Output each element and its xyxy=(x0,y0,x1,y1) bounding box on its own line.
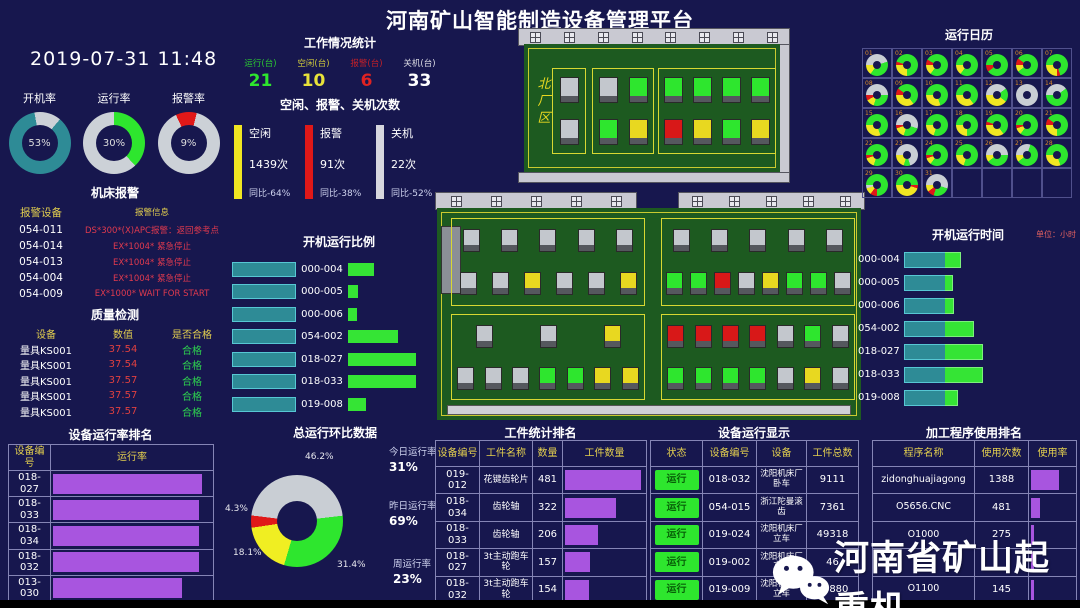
counts-title: 空闲、报警、关机次数 xyxy=(234,96,446,113)
work-stat-value: 33 xyxy=(393,71,446,91)
machine-base xyxy=(561,96,578,102)
factory-zone-br xyxy=(661,314,855,400)
workpiece-count: 481 xyxy=(533,467,563,494)
calendar-day-donut xyxy=(896,144,918,166)
machine-base xyxy=(540,245,555,251)
machine-base xyxy=(668,341,683,347)
alarm-info: DS*300*(X)APC报警：返回参考点 xyxy=(78,224,226,236)
alarm-col-device: 报警设备 xyxy=(4,205,78,220)
machine-gray xyxy=(777,367,794,390)
calendar-day-donut xyxy=(956,54,978,76)
machine-row xyxy=(452,262,644,305)
factory-zone-tl xyxy=(451,218,645,306)
time-run-bar xyxy=(945,344,983,360)
quality-result: 合格 xyxy=(158,357,226,372)
machine-gray xyxy=(832,367,849,390)
ratio-run-bar xyxy=(348,353,416,366)
machine-base xyxy=(541,341,556,347)
calendar-day-hole xyxy=(1053,61,1061,69)
calendar-day-hole xyxy=(933,61,941,69)
machine-base xyxy=(561,138,578,144)
wall-column xyxy=(564,32,575,43)
machine-gray xyxy=(588,272,605,295)
wall-column xyxy=(530,32,541,43)
alarm-header: 报警设备 报警信息 xyxy=(4,204,226,220)
calendar-day-donut xyxy=(1016,144,1038,166)
machine-red xyxy=(667,325,684,348)
machine-base xyxy=(595,383,610,389)
machine-green xyxy=(786,272,803,295)
calendar-day: 05 xyxy=(982,48,1012,78)
workpiece-name: 3t主动跑车轮 xyxy=(480,549,533,576)
count-value: 91次 xyxy=(320,156,361,172)
calendar-day: 04 xyxy=(952,48,982,78)
ratio-poweron-bar xyxy=(232,307,296,322)
machine-red xyxy=(664,119,683,145)
calendar-day-hole xyxy=(963,121,971,129)
machine-yellow xyxy=(762,272,779,295)
factory-zone-bl xyxy=(451,314,645,400)
machine-green xyxy=(664,77,683,103)
device-status-cell: 运行 xyxy=(651,467,703,494)
quality-title: 质量检测 xyxy=(4,306,226,323)
program-name: O5656.CNC xyxy=(873,494,975,521)
quality-result: 合格 xyxy=(158,388,226,403)
machine-gray xyxy=(560,77,579,103)
time-run-bar xyxy=(945,390,958,406)
alarm-row: 054-004EX*1004* 紧急停止 xyxy=(4,270,226,286)
rate-bar-cell xyxy=(51,576,214,602)
machine-green xyxy=(599,119,618,145)
machine-base xyxy=(486,383,501,389)
calendar-day-hole xyxy=(873,121,881,129)
gauge-donut: 运行率30% xyxy=(79,90,150,174)
machine-row xyxy=(659,111,775,153)
workpiece-bar-cell xyxy=(563,467,647,494)
calendar-day: 02 xyxy=(892,48,922,78)
time-chart-unit: 单位：小时 xyxy=(1036,229,1076,240)
wall-column xyxy=(611,196,622,207)
alarm-col-info: 报警信息 xyxy=(78,206,226,218)
time-run-bar xyxy=(945,321,974,337)
count-yoy: 同比-64% xyxy=(249,186,290,199)
calendar-day: 22 xyxy=(862,138,892,168)
machine-base xyxy=(668,383,683,389)
work-stat-label: 关机(台) xyxy=(393,57,446,69)
machine-base xyxy=(805,383,820,389)
quality-row: 量具KS00137.54合格 xyxy=(4,342,226,358)
machine-gray xyxy=(599,77,618,103)
work-stat: 运行(台)21 xyxy=(234,57,287,91)
wall-column xyxy=(632,32,643,43)
time-poweron-bar xyxy=(904,367,945,383)
time-row: 054-002 xyxy=(858,317,1078,340)
machine-yellow xyxy=(804,367,821,390)
work-stats-panel: 工作情况统计 运行(台)21空闲(台)10报警(台)6关机(台)33 xyxy=(234,34,446,91)
rate-bar-cell xyxy=(51,497,214,523)
time-poweron-bar xyxy=(904,252,945,268)
calendar-day: 08 xyxy=(862,78,892,108)
machine-base xyxy=(723,96,740,102)
quality-row: 量具KS00137.54合格 xyxy=(4,357,226,373)
quality-result: 合格 xyxy=(158,373,226,388)
machine-gray xyxy=(457,367,474,390)
calendar-day-donut xyxy=(866,174,888,196)
calendar-day-hole xyxy=(1023,61,1031,69)
count-label: 空闲 xyxy=(249,125,290,141)
calendar-day-donut xyxy=(1016,84,1038,106)
device-col-header: 设备编号 xyxy=(703,441,757,467)
dashboard: 河南矿山智能制造设备管理平台 2019-07-31 11:48 开机率53%运行… xyxy=(0,0,1080,608)
wall-column xyxy=(767,32,778,43)
calendar-day-hole xyxy=(1023,121,1031,129)
quality-device: 量具KS001 xyxy=(4,342,88,357)
machine-yellow xyxy=(594,367,611,390)
rate-bar xyxy=(53,552,199,572)
calendar-day: 20 xyxy=(1012,108,1042,138)
program-name: zidonghuajiagong xyxy=(873,467,975,494)
calendar-day: 09 xyxy=(892,78,922,108)
calendar-day-donut xyxy=(1046,114,1068,136)
calendar-day-hole xyxy=(873,61,881,69)
rate-device-id: 013-030 xyxy=(9,576,51,602)
calendar-day-donut xyxy=(986,114,1008,136)
ratio-run-bar xyxy=(348,285,358,298)
work-stats-items: 运行(台)21空闲(台)10报警(台)6关机(台)33 xyxy=(234,57,446,91)
machine-green xyxy=(722,119,741,145)
rate-bar xyxy=(53,474,202,494)
machine-row xyxy=(662,262,854,305)
ratio-row: 018-033 xyxy=(232,371,446,394)
alarm-device: 054-009 xyxy=(4,288,78,300)
device-name: 沈阳机床厂卧车 xyxy=(757,467,807,494)
rate-device-id: 018-032 xyxy=(9,550,51,576)
machine-base xyxy=(617,245,632,251)
main-floor xyxy=(437,208,861,420)
calendar-day-donut xyxy=(926,84,948,106)
machine-gray xyxy=(749,229,766,252)
rate-col-header: 运行率 xyxy=(51,445,214,471)
calendar-day: 15 xyxy=(862,108,892,138)
wall-column xyxy=(491,196,502,207)
rate-rank-title: 设备运行率排名 xyxy=(8,426,213,443)
machine-base xyxy=(778,383,793,389)
ratio-poweron-bar xyxy=(232,284,296,299)
count-text: 关机22次同比-52% xyxy=(391,125,432,199)
ratio-device-id: 018-033 xyxy=(296,376,348,387)
north-area-label: 北 厂 区 xyxy=(536,76,552,127)
calendar-day-hole xyxy=(933,151,941,159)
calendar-day xyxy=(1042,168,1072,198)
machine-base xyxy=(568,383,583,389)
calendar-day: 17 xyxy=(922,108,952,138)
calendar-day: 24 xyxy=(922,138,952,168)
program-col-header: 使用次数 xyxy=(975,441,1029,467)
wall-column xyxy=(733,32,744,43)
gauge-value: 30% xyxy=(83,112,145,174)
calendar-day-donut xyxy=(896,174,918,196)
work-stat: 空闲(台)10 xyxy=(287,57,340,91)
rate-bar xyxy=(53,526,199,546)
wechat-icon xyxy=(770,552,832,608)
counts-panel: 空闲、报警、关机次数 空闲1439次同比-64%报警91次同比-38%关机22次… xyxy=(234,96,446,199)
calendar-day: 29 xyxy=(862,168,892,198)
machine-gray xyxy=(539,229,556,252)
device-status-cell: 运行 xyxy=(651,494,703,521)
north-machine-group xyxy=(592,68,654,154)
quality-device: 量具KS001 xyxy=(4,388,88,403)
machine-base xyxy=(461,288,476,294)
calendar-day-hole xyxy=(993,91,1001,99)
ratio-chart-panel: 开机运行比例 000-004000-005000-006054-002018-0… xyxy=(232,233,446,416)
calendar-day-hole xyxy=(903,91,911,99)
ratio-device-id: 019-008 xyxy=(296,399,348,410)
count-text: 报警91次同比-38% xyxy=(320,125,361,199)
calendar-day-donut xyxy=(1016,54,1038,76)
machine-base xyxy=(789,245,804,251)
alarm-row: 054-014EX*1004* 紧急停止 xyxy=(4,238,226,254)
workpiece-col-header: 工件数量 xyxy=(563,441,647,467)
machine-green xyxy=(666,272,683,295)
rate-col-header: 设备编号 xyxy=(9,445,51,471)
machine-red xyxy=(722,325,739,348)
machine-base xyxy=(723,383,738,389)
calendar-day-donut xyxy=(896,114,918,136)
ratio-run-bar xyxy=(348,375,416,388)
workpiece-bar xyxy=(565,525,598,545)
ratio-row: 000-005 xyxy=(232,281,446,304)
time-row: 000-006 xyxy=(858,294,1078,317)
machine-yellow xyxy=(693,119,712,145)
machine-gray xyxy=(673,229,690,252)
calendar-day-hole xyxy=(993,121,1001,129)
calendar-day: 10 xyxy=(922,78,952,108)
rate-device-id: 018-033 xyxy=(9,497,51,523)
alarm-device: 054-014 xyxy=(4,240,78,252)
calendar-day-hole xyxy=(963,61,971,69)
machine-base xyxy=(787,288,802,294)
machine-base xyxy=(827,245,842,251)
rate-device-id: 018-034 xyxy=(9,523,51,549)
alarm-device: 054-013 xyxy=(4,256,78,268)
count-text: 空闲1439次同比-64% xyxy=(249,125,290,199)
calendar-day-hole xyxy=(933,121,941,129)
count-bar xyxy=(234,125,242,199)
time-poweron-bar xyxy=(904,275,945,291)
calendar-day-hole xyxy=(903,121,911,129)
program-bar-cell xyxy=(1029,467,1077,494)
calendar-day xyxy=(982,168,1012,198)
machine-base xyxy=(715,288,730,294)
quality-value: 37.57 xyxy=(88,406,158,417)
wall-column xyxy=(766,196,777,207)
ratio-chart-rows: 000-004000-005000-006054-002018-027018-0… xyxy=(232,258,446,416)
count-yoy: 同比-52% xyxy=(391,186,432,199)
program-bar xyxy=(1031,470,1059,490)
wall-column xyxy=(451,196,462,207)
wall-column xyxy=(699,32,710,43)
machine-base xyxy=(540,383,555,389)
workpiece-device-id: 018-033 xyxy=(436,522,480,549)
machine-gray xyxy=(512,367,529,390)
ratio-row: 054-002 xyxy=(232,326,446,349)
machine-base xyxy=(477,341,492,347)
work-stat-label: 运行(台) xyxy=(234,57,287,69)
quality-value: 37.54 xyxy=(88,359,158,370)
run-calendar-grid: 0102030405060708091011121314151617181920… xyxy=(862,48,1076,198)
time-run-bar xyxy=(945,298,954,314)
calendar-day-hole xyxy=(1053,121,1061,129)
calendar-day: 01 xyxy=(862,48,892,78)
quality-value: 37.57 xyxy=(88,390,158,401)
device-display-title: 设备运行显示 xyxy=(650,424,858,441)
time-poweron-bar xyxy=(904,298,945,314)
calendar-day-hole xyxy=(873,91,881,99)
hb-donut-title: 总运行环比数据 xyxy=(225,424,445,441)
quality-col-device: 设备 xyxy=(4,326,88,341)
rate-rank-table: 设备编号运行率018-027018-033018-034018-032013-0… xyxy=(8,444,214,602)
calendar-day-hole xyxy=(1023,151,1031,159)
rate-bar xyxy=(53,578,182,598)
hb-donut-hole xyxy=(277,501,317,541)
machine-alarm-panel: 机床报警 报警设备 报警信息 054-011DS*300*(X)APC报警：返回… xyxy=(4,184,226,302)
time-device-id: 000-004 xyxy=(858,254,904,265)
machine-base xyxy=(630,138,647,144)
machine-base xyxy=(458,383,473,389)
calendar-day: 30 xyxy=(892,168,922,198)
north-wall-bottom xyxy=(518,172,790,183)
machine-base xyxy=(805,341,820,347)
calendar-day-hole xyxy=(993,151,1001,159)
calendar-day: 31 xyxy=(922,168,952,198)
time-chart-panel: 开机运行时间 单位：小时 000-004000-005000-006054-00… xyxy=(858,226,1078,409)
time-run-bar xyxy=(945,252,961,268)
count-bar xyxy=(305,125,313,199)
time-device-id: 018-027 xyxy=(858,346,904,357)
wall-column xyxy=(665,32,676,43)
hb-label-yellow: 18.1% xyxy=(233,548,262,558)
calendar-day-hole xyxy=(1053,151,1061,159)
alarm-title: 机床报警 xyxy=(4,184,226,201)
calendar-day: 13 xyxy=(1012,78,1042,108)
machine-base xyxy=(513,383,528,389)
calendar-day-hole xyxy=(1053,91,1061,99)
machine-base xyxy=(696,341,711,347)
factory-zone-tr xyxy=(661,218,855,306)
machine-base xyxy=(579,245,594,251)
workpiece-bar xyxy=(565,498,616,518)
count-group: 关机22次同比-52% xyxy=(376,125,446,199)
ratio-device-id: 000-005 xyxy=(296,286,348,297)
calendar-day-donut xyxy=(896,54,918,76)
alarm-rows: 054-011DS*300*(X)APC报警：返回参考点054-014EX*10… xyxy=(4,222,226,302)
hb-donut-panel: 总运行环比数据 46.2% 31.4% 18.1% 4.3% 今日运行率 31%… xyxy=(225,424,445,604)
machine-yellow xyxy=(622,367,639,390)
ratio-poweron-bar xyxy=(232,329,296,344)
time-chart-rows: 000-004000-005000-006054-002018-027018-0… xyxy=(858,248,1078,409)
ratio-row: 018-027 xyxy=(232,348,446,371)
machine-yellow xyxy=(751,119,770,145)
workpiece-count: 322 xyxy=(533,494,563,521)
time-row: 019-008 xyxy=(858,386,1078,409)
calendar-day: 21 xyxy=(1042,108,1072,138)
device-status-badge: 运行 xyxy=(655,580,699,600)
machine-row xyxy=(662,357,854,399)
calendar-day-donut xyxy=(866,114,888,136)
machine-gray xyxy=(492,272,509,295)
workpiece-name: 齿轮轴 xyxy=(480,494,533,521)
calendar-day-hole xyxy=(963,151,971,159)
wall-column xyxy=(729,196,740,207)
device-id: 019-002 xyxy=(703,549,757,576)
machine-green xyxy=(804,325,821,348)
time-row: 018-027 xyxy=(858,340,1078,363)
count-value: 22次 xyxy=(391,156,432,172)
program-title: 加工程序使用排名 xyxy=(872,424,1076,441)
machine-green xyxy=(690,272,707,295)
machine-green xyxy=(693,77,712,103)
workpiece-name: 花键齿轮片 xyxy=(480,467,533,494)
machine-base xyxy=(502,245,517,251)
calendar-day-donut xyxy=(866,144,888,166)
machine-base xyxy=(778,341,793,347)
work-stat-value: 10 xyxy=(287,71,340,91)
north-floor: 北 厂 区 xyxy=(524,44,780,172)
machine-base xyxy=(665,138,682,144)
workpiece-device-id: 018-034 xyxy=(436,494,480,521)
north-machine-group xyxy=(552,68,586,154)
alarm-info: EX*1000* WAIT FOR START xyxy=(78,289,226,299)
quality-result: 合格 xyxy=(158,404,226,419)
machine-yellow xyxy=(629,119,648,145)
calendar-day: 03 xyxy=(922,48,952,78)
ratio-row: 000-004 xyxy=(232,258,446,281)
calendar-day-hole xyxy=(963,91,971,99)
time-device-id: 054-002 xyxy=(858,323,904,334)
quality-panel: 质量检测 设备 数值 是否合格 量具KS00137.54合格量具KS00137.… xyxy=(4,306,226,419)
work-stat: 报警(台)6 xyxy=(340,57,393,91)
machine-base xyxy=(750,245,765,251)
workpiece-bar-cell xyxy=(563,494,647,521)
wall-column xyxy=(692,196,703,207)
device-id: 018-032 xyxy=(703,467,757,494)
machine-gray xyxy=(738,272,755,295)
time-poweron-bar xyxy=(904,321,945,337)
time-device-id: 000-006 xyxy=(858,300,904,311)
gauge-label: 报警率 xyxy=(153,90,224,106)
calendar-day-hole xyxy=(933,181,941,189)
device-status-cell: 运行 xyxy=(651,549,703,576)
calendar-day-donut xyxy=(926,54,948,76)
calendar-day-donut xyxy=(1046,84,1068,106)
machine-base xyxy=(630,96,647,102)
gauge-label: 运行率 xyxy=(79,90,150,106)
machine-green xyxy=(629,77,648,103)
machine-base xyxy=(696,383,711,389)
workpiece-col-header: 设备编号 xyxy=(436,441,480,467)
quality-value: 37.54 xyxy=(88,344,158,355)
ratio-run-bar xyxy=(348,330,398,343)
time-device-id: 018-033 xyxy=(858,369,904,380)
machine-base xyxy=(525,288,540,294)
quality-device: 量具KS001 xyxy=(4,404,88,419)
rate-bar xyxy=(53,500,199,520)
machine-base xyxy=(763,288,778,294)
alarm-row: 054-011DS*300*(X)APC报警：返回参考点 xyxy=(4,222,226,238)
calendar-day: 25 xyxy=(952,138,982,168)
ratio-device-id: 000-006 xyxy=(296,309,348,320)
device-id: 054-015 xyxy=(703,494,757,521)
